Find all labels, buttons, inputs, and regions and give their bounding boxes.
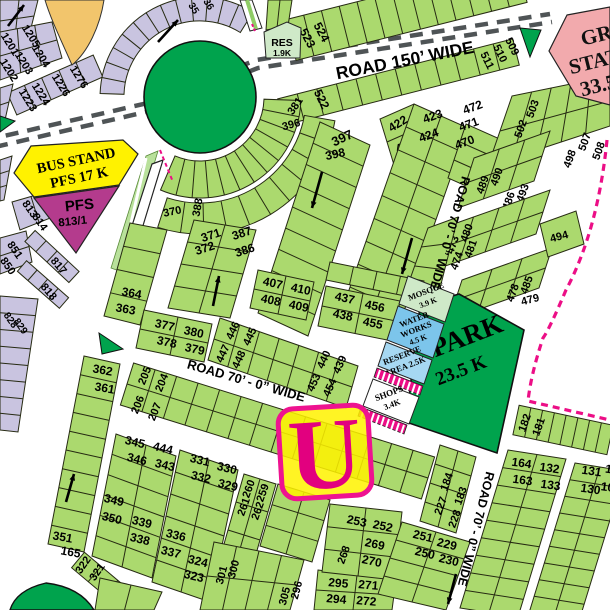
svg-text:PFS: PFS [64,196,95,216]
svg-text:10: 10 [600,479,610,495]
svg-text:130: 130 [580,481,602,498]
svg-text:133: 133 [540,477,562,494]
svg-text:132: 132 [539,460,561,477]
svg-text:164: 164 [511,455,533,472]
svg-text:272: 272 [356,593,377,609]
svg-text:1.9K: 1.9K [273,48,292,58]
svg-text:131: 131 [581,463,603,480]
svg-text:294: 294 [326,591,347,607]
svg-text:295: 295 [328,575,349,591]
svg-text:271: 271 [358,577,379,593]
svg-text:163: 163 [512,472,534,489]
svg-text:U: U [285,396,365,512]
svg-text:1: 1 [604,462,610,477]
